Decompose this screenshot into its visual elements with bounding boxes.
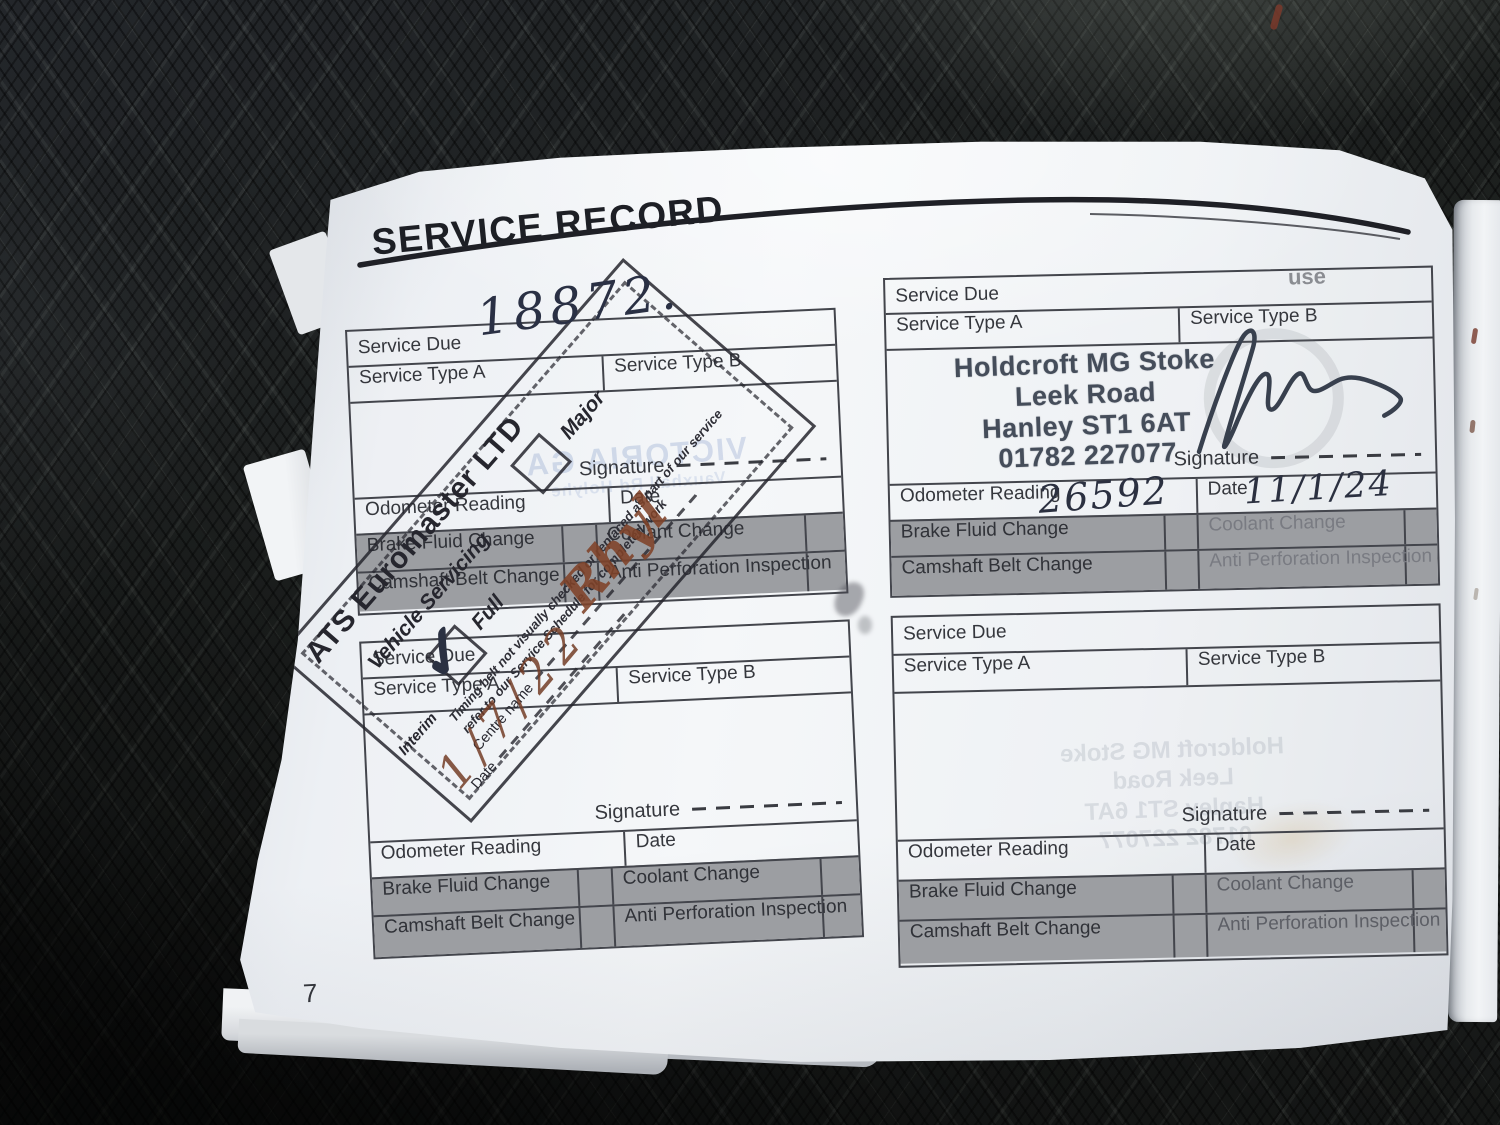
- camshaft-checkbox: [1173, 915, 1207, 958]
- fluid-row-2: Camshaft Belt Change Anti Perforation In…: [900, 907, 1447, 963]
- showthrough-text-fragment: use: [1288, 263, 1327, 290]
- service-record-box-3: Service Due Service Type A Service Type …: [883, 266, 1440, 598]
- coolant-label: Coolant Change: [1198, 504, 1346, 536]
- stamp-area: Holdcroft MG Stoke Leek Road Hanley ST1 …: [894, 679, 1443, 839]
- page-title: SERVICE RECORD: [370, 188, 726, 264]
- anti-perforation-cell: Anti Perforation Inspection: [1205, 910, 1413, 957]
- camshaft-cell: Camshaft Belt Change: [374, 908, 580, 957]
- signature-line: [692, 801, 842, 811]
- right-record-column: Service Due Service Type A Service Type …: [883, 266, 1429, 278]
- camshaft-checkbox: [578, 906, 614, 948]
- anti-perforation-cell: Anti Perforation Inspection: [1197, 546, 1405, 589]
- anti-perforation-label: Anti Perforation Inspection: [1207, 902, 1440, 936]
- coolant-label: Coolant Change: [1206, 863, 1354, 895]
- camshaft-checkbox: [1164, 551, 1198, 590]
- camshaft-cell: Camshaft Belt Change: [900, 916, 1174, 964]
- anti-perforation-cell: Anti Perforation Inspection: [612, 897, 823, 946]
- page-number: 7: [302, 978, 318, 1010]
- date-label: Date: [1205, 828, 1256, 856]
- brake-fluid-label: Brake Fluid Change: [899, 870, 1078, 903]
- odometer-label: Odometer Reading: [890, 476, 1061, 507]
- camshaft-label: Camshaft Belt Change: [899, 909, 1101, 943]
- fluid-row-2: Camshaft Belt Change Anti Perforation In…: [891, 543, 1438, 595]
- brake-fluid-checkbox: [1163, 515, 1197, 550]
- signature-field: Signature: [1181, 799, 1429, 828]
- service-record-page: SERVICE RECORD Service Due Service Type …: [210, 138, 1465, 1076]
- brake-fluid-label: Brake Fluid Change: [890, 510, 1069, 543]
- service-type-b-label: Service Type B: [618, 656, 757, 689]
- ink-smudge: [858, 616, 872, 634]
- anti-perforation-label: Anti Perforation Inspection: [1199, 538, 1432, 572]
- odometer-label: Odometer Reading: [898, 832, 1069, 863]
- signature-field: Signature: [594, 791, 842, 825]
- coolant-label: Coolant Change: [612, 854, 760, 890]
- brake-fluid-checkbox: [576, 869, 612, 907]
- service-type-a-label: Service Type A: [886, 306, 1023, 336]
- camshaft-label: Camshaft Belt Change: [891, 545, 1093, 579]
- handwritten-signature: [1182, 315, 1426, 480]
- service-type-a-label: Service Type A: [348, 356, 485, 389]
- date-label: Date: [625, 824, 676, 853]
- photo-scene: SERVICE RECORD Service Due Service Type …: [0, 0, 1500, 1125]
- service-type-b-cell: Service Type B: [1186, 643, 1441, 685]
- signature-line: [1279, 809, 1429, 815]
- service-type-b-label: Service Type B: [1187, 640, 1325, 670]
- facing-page-spine: [1448, 200, 1500, 1022]
- camshaft-cell: Camshaft Belt Change: [891, 552, 1165, 596]
- date-label: Date: [1197, 472, 1248, 500]
- stamp-area: Holdcroft MG Stoke Leek Road Hanley ST1 …: [887, 337, 1436, 484]
- service-record-box-4: Service Due Service Type A Service Type …: [891, 603, 1449, 967]
- service-type-a-label: Service Type A: [893, 647, 1030, 677]
- brake-fluid-checkbox: [1172, 875, 1206, 914]
